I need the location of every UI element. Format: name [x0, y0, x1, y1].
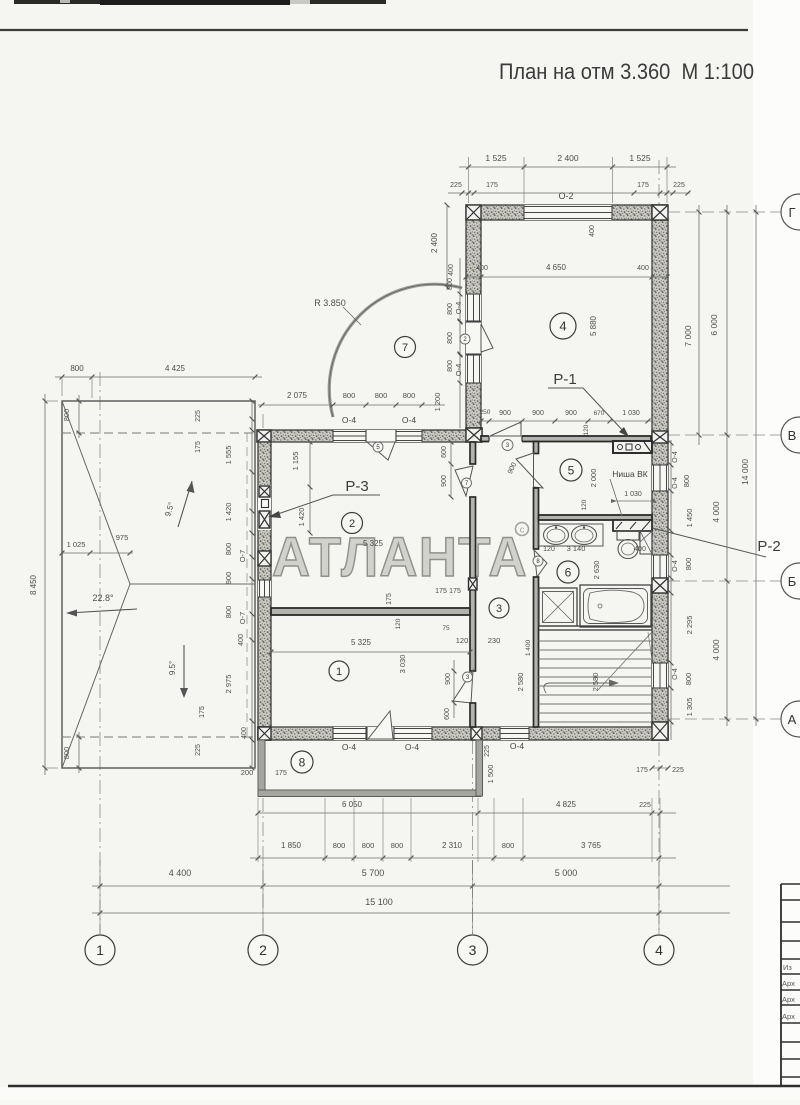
svg-text:6 000: 6 000	[709, 314, 719, 336]
svg-text:120: 120	[456, 636, 469, 645]
svg-text:1 420: 1 420	[297, 508, 306, 527]
svg-text:800: 800	[447, 278, 454, 290]
svg-text:R 3.850: R 3.850	[314, 298, 346, 308]
svg-text:1: 1	[336, 666, 342, 678]
svg-text:225: 225	[639, 802, 651, 809]
svg-text:120: 120	[583, 424, 590, 435]
svg-text:7 000: 7 000	[683, 325, 693, 347]
svg-text:О-2: О-2	[558, 191, 573, 201]
svg-text:800: 800	[403, 391, 416, 400]
svg-text:4 000: 4 000	[711, 639, 721, 661]
svg-text:3 140: 3 140	[567, 544, 586, 553]
svg-text:О-7: О-7	[238, 612, 247, 625]
svg-text:800: 800	[62, 409, 71, 422]
svg-text:Арх: Арх	[782, 979, 795, 988]
svg-text:1: 1	[96, 942, 104, 958]
svg-text:5: 5	[568, 463, 575, 477]
svg-text:800: 800	[62, 747, 71, 760]
svg-text:1 025: 1 025	[67, 540, 86, 549]
svg-text:120: 120	[543, 546, 555, 553]
svg-text:4 825: 4 825	[556, 800, 577, 809]
svg-text:175: 175	[486, 182, 498, 189]
svg-text:О-4: О-4	[342, 742, 356, 752]
svg-text:2 310: 2 310	[442, 841, 463, 850]
svg-text:4: 4	[655, 942, 663, 958]
svg-text:А: А	[788, 712, 797, 727]
svg-text:600: 600	[444, 708, 451, 720]
svg-text:О-4: О-4	[454, 364, 463, 377]
svg-text:225: 225	[484, 745, 491, 757]
svg-text:5 325: 5 325	[363, 539, 384, 548]
svg-text:7: 7	[402, 342, 408, 354]
svg-text:900: 900	[565, 410, 577, 417]
svg-text:900: 900	[224, 572, 233, 585]
svg-text:225: 225	[195, 410, 202, 422]
svg-text:230: 230	[488, 636, 501, 645]
svg-text:225: 225	[673, 182, 685, 189]
svg-text:120: 120	[581, 499, 588, 510]
svg-text:2 000: 2 000	[589, 469, 598, 488]
svg-text:175: 175	[449, 588, 461, 595]
svg-text:1 400: 1 400	[525, 639, 532, 656]
svg-text:О-7: О-7	[238, 550, 247, 563]
svg-text:2 975: 2 975	[224, 675, 233, 694]
svg-text:600: 600	[441, 446, 448, 458]
svg-text:800: 800	[224, 606, 233, 619]
svg-text:3: 3	[469, 942, 477, 958]
svg-text:22.8°: 22.8°	[92, 593, 114, 603]
svg-text:225: 225	[672, 767, 684, 774]
svg-text:В: В	[788, 428, 797, 443]
svg-text:АТЛАНТА: АТЛАНТА	[272, 525, 528, 588]
svg-text:1 155: 1 155	[291, 452, 300, 471]
svg-text:800: 800	[333, 841, 346, 850]
svg-text:4: 4	[559, 319, 566, 334]
svg-text:8: 8	[299, 755, 306, 769]
svg-text:5 000: 5 000	[555, 868, 578, 878]
svg-text:1 450: 1 450	[685, 509, 694, 528]
svg-text:1 030: 1 030	[622, 410, 640, 417]
svg-text:225: 225	[195, 744, 202, 756]
svg-text:175: 175	[386, 593, 393, 605]
svg-text:2 400: 2 400	[430, 232, 439, 253]
svg-text:175: 175	[636, 767, 648, 774]
svg-text:175: 175	[195, 441, 202, 453]
svg-text:1 525: 1 525	[629, 153, 651, 163]
svg-text:800: 800	[447, 303, 454, 315]
svg-text:400: 400	[476, 265, 488, 272]
svg-text:800: 800	[684, 558, 693, 571]
svg-text:2 295: 2 295	[685, 616, 694, 635]
svg-text:225: 225	[450, 182, 462, 189]
svg-text:4 650: 4 650	[546, 263, 567, 272]
svg-text:800: 800	[682, 475, 691, 488]
svg-text:Р-3: Р-3	[345, 478, 368, 495]
svg-text:4 000: 4 000	[711, 501, 721, 523]
svg-text:3 030: 3 030	[398, 655, 407, 674]
svg-text:400: 400	[241, 727, 248, 739]
svg-text:Ниша ВК: Ниша ВК	[612, 469, 647, 479]
svg-text:800: 800	[70, 364, 84, 373]
svg-text:400: 400	[448, 264, 455, 276]
svg-text:800: 800	[375, 391, 388, 400]
svg-text:3: 3	[496, 603, 502, 615]
svg-text:800: 800	[362, 841, 375, 850]
svg-text:400: 400	[589, 225, 596, 237]
svg-text:800: 800	[224, 543, 233, 556]
svg-text:2 630: 2 630	[592, 561, 601, 580]
svg-text:975: 975	[116, 533, 129, 542]
svg-text:175: 175	[275, 770, 287, 777]
svg-text:4 425: 4 425	[165, 364, 186, 373]
svg-text:800: 800	[343, 391, 356, 400]
svg-text:800: 800	[684, 673, 693, 686]
svg-text:8 450: 8 450	[29, 574, 38, 595]
svg-text:250: 250	[480, 409, 491, 416]
svg-text:175: 175	[435, 588, 447, 595]
svg-text:900: 900	[441, 475, 448, 487]
svg-text:О-4: О-4	[454, 302, 463, 315]
svg-text:800: 800	[447, 332, 454, 344]
svg-text:5 700: 5 700	[362, 868, 385, 878]
svg-text:15 100: 15 100	[365, 897, 393, 907]
svg-text:900: 900	[532, 410, 544, 417]
svg-text:2 075: 2 075	[287, 391, 308, 400]
svg-text:3 765: 3 765	[581, 841, 602, 850]
svg-text:О-4: О-4	[342, 415, 356, 425]
svg-text:1 850: 1 850	[281, 841, 302, 850]
svg-text:О-4: О-4	[510, 741, 524, 751]
svg-text:Р-2: Р-2	[757, 538, 780, 555]
svg-text:1 525: 1 525	[485, 153, 507, 163]
svg-text:с: с	[520, 525, 525, 535]
svg-text:2 580: 2 580	[516, 673, 525, 692]
svg-text:1 555: 1 555	[224, 446, 233, 465]
svg-text:О-4: О-4	[672, 668, 679, 680]
svg-text:1 420: 1 420	[224, 503, 233, 522]
svg-text:1 305: 1 305	[685, 698, 694, 717]
svg-text:1 200: 1 200	[433, 393, 442, 412]
svg-text:Б: Б	[788, 574, 797, 589]
svg-text:14 000: 14 000	[740, 459, 750, 485]
svg-text:Из: Из	[783, 963, 792, 972]
svg-text:6 050: 6 050	[342, 800, 363, 809]
svg-text:400: 400	[238, 634, 245, 646]
svg-text:2: 2	[349, 518, 355, 530]
svg-text:800: 800	[391, 841, 404, 850]
svg-text:75: 75	[442, 625, 450, 632]
svg-text:900: 900	[445, 673, 452, 685]
svg-text:1 030: 1 030	[624, 491, 642, 498]
svg-text:800: 800	[447, 360, 454, 372]
svg-text:6: 6	[565, 565, 572, 579]
svg-text:2 580: 2 580	[591, 673, 600, 692]
svg-text:175: 175	[637, 182, 649, 189]
svg-text:4 400: 4 400	[169, 868, 192, 878]
svg-text:670: 670	[594, 410, 605, 417]
svg-text:5 880: 5 880	[589, 315, 598, 336]
svg-text:Арх: Арх	[782, 995, 795, 1004]
svg-text:400: 400	[637, 265, 649, 272]
svg-text:5 325: 5 325	[351, 638, 372, 647]
svg-text:О-4: О-4	[405, 742, 419, 752]
svg-text:О-4: О-4	[402, 415, 416, 425]
svg-text:1 500: 1 500	[486, 765, 495, 784]
svg-text:План на отм 3.360 М 1:100: План на отм 3.360 М 1:100	[499, 59, 754, 84]
svg-text:Р-1: Р-1	[553, 371, 576, 388]
svg-text:О-4: О-4	[672, 560, 679, 572]
svg-text:400: 400	[634, 546, 646, 553]
svg-text:О-4: О-4	[672, 477, 679, 489]
svg-text:Арх: Арх	[782, 1012, 795, 1021]
svg-text:2: 2	[259, 942, 267, 958]
svg-text:200: 200	[241, 768, 254, 777]
svg-text:9.5°: 9.5°	[168, 661, 177, 675]
svg-text:2 400: 2 400	[557, 153, 579, 163]
svg-text:О-4: О-4	[672, 451, 679, 463]
svg-text:800: 800	[502, 841, 515, 850]
svg-text:120: 120	[395, 618, 402, 629]
svg-text:900: 900	[499, 410, 511, 417]
svg-text:175: 175	[199, 706, 206, 718]
svg-text:Г: Г	[788, 205, 795, 220]
